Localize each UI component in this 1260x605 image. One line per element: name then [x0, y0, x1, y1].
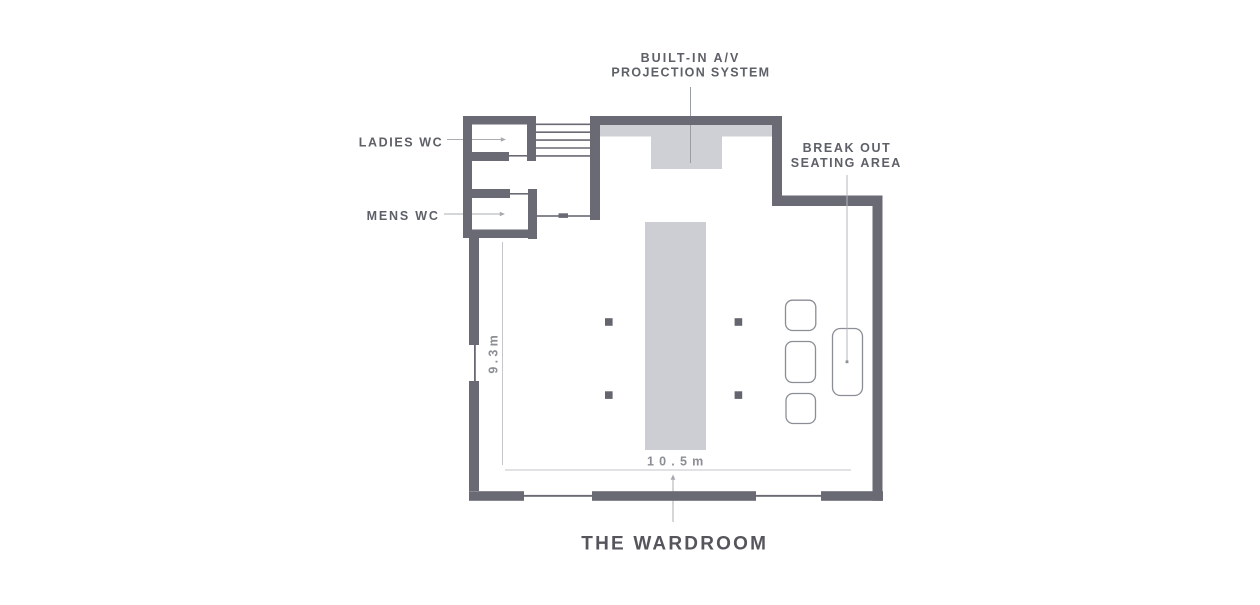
svg-text:9.3m: 9.3m: [487, 332, 501, 374]
svg-text:THE WARDROOM: THE WARDROOM: [581, 534, 768, 555]
svg-text:BREAK OUT: BREAK OUT: [803, 141, 892, 155]
svg-text:MENS WC: MENS WC: [367, 209, 440, 223]
svg-text:10.5m: 10.5m: [647, 455, 708, 469]
svg-text:BUILT-IN A/V: BUILT-IN A/V: [641, 51, 741, 65]
svg-text:PROJECTION SYSTEM: PROJECTION SYSTEM: [611, 66, 770, 80]
svg-text:SEATING AREA: SEATING AREA: [791, 156, 902, 170]
svg-text:LADIES WC: LADIES WC: [359, 136, 444, 150]
